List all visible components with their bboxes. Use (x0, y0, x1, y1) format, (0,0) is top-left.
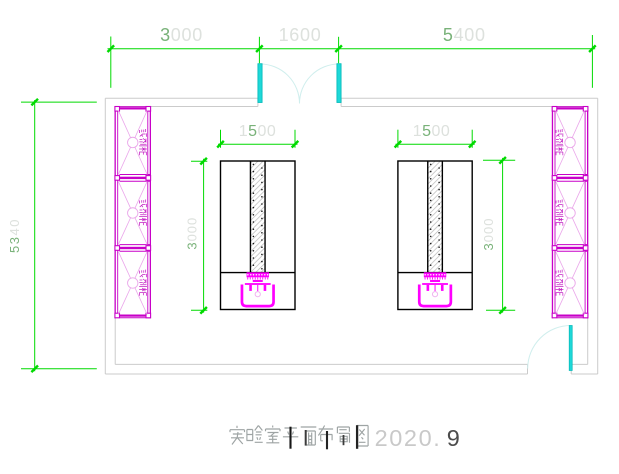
svg-text:2020.: 2020. (375, 425, 442, 451)
svg-text:1500: 1500 (239, 123, 277, 140)
svg-text:3000: 3000 (184, 217, 199, 250)
svg-text:5340: 5340 (7, 218, 22, 253)
svg-text:1500: 1500 (413, 123, 451, 140)
svg-text:3000: 3000 (160, 25, 203, 45)
svg-text:1600: 1600 (279, 25, 322, 45)
svg-text:3000: 3000 (481, 218, 496, 251)
svg-text:5400: 5400 (443, 25, 486, 45)
svg-text:9: 9 (447, 425, 460, 451)
